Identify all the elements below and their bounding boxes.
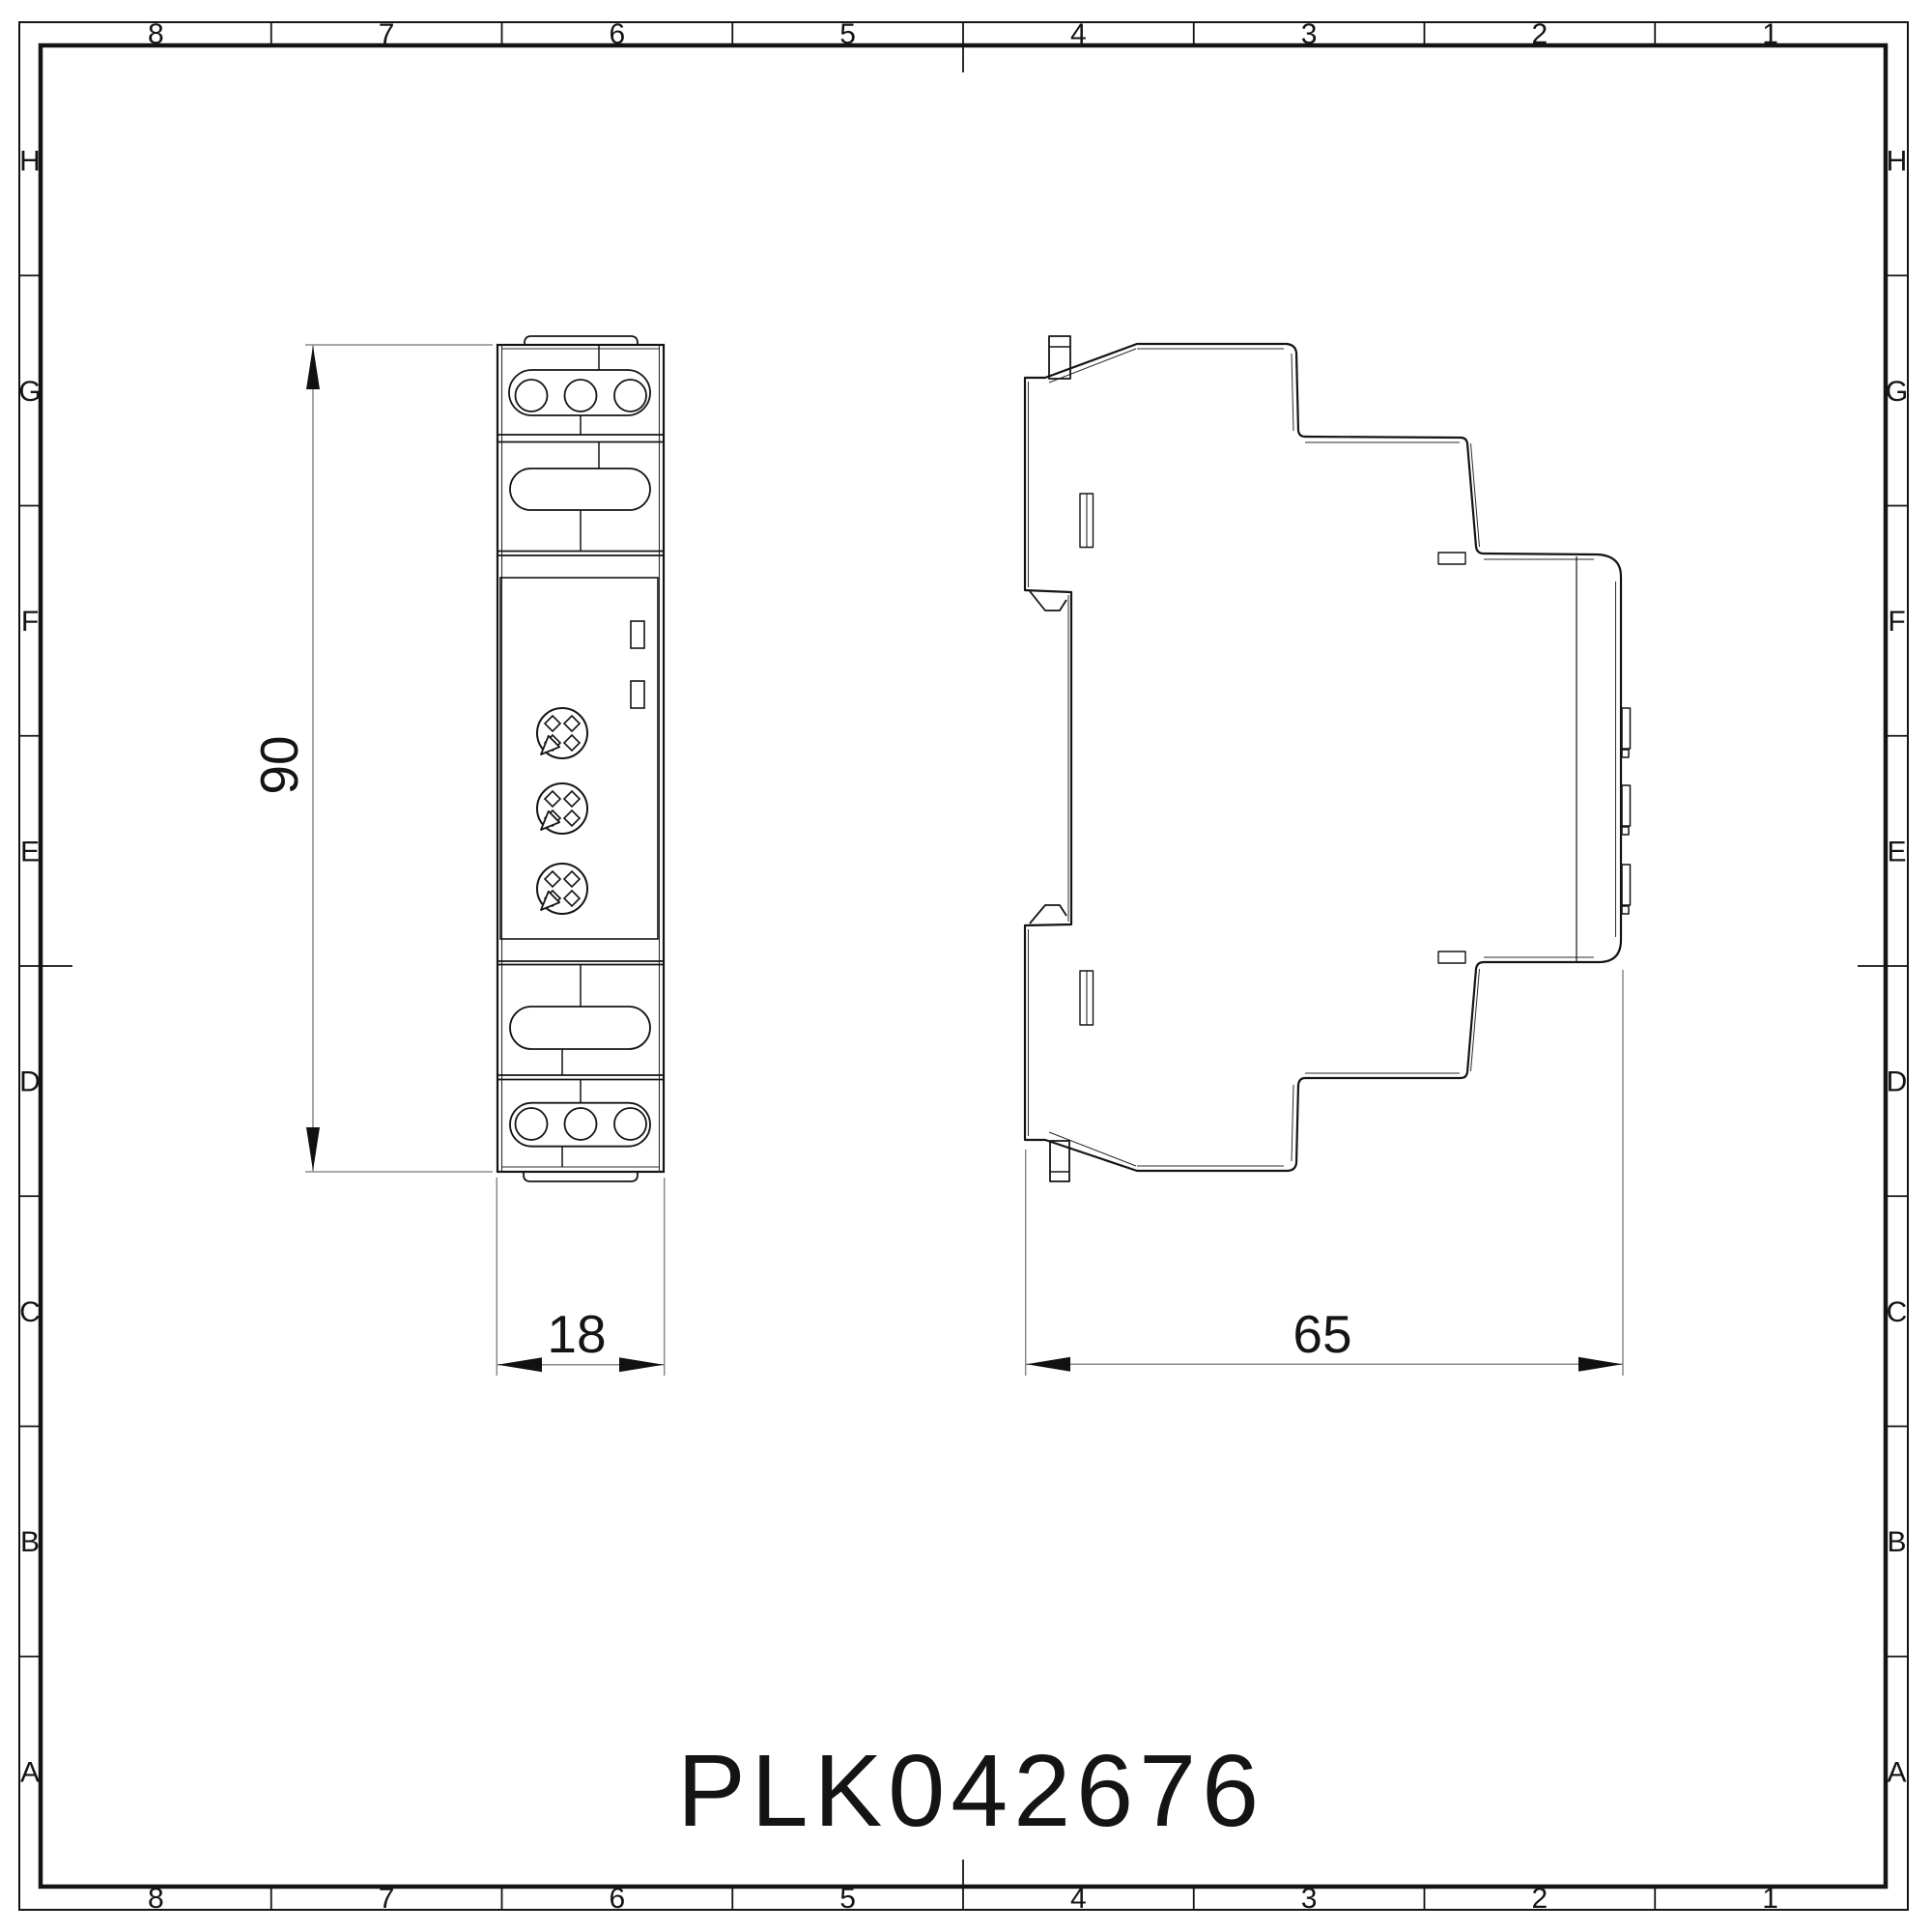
dimension-arrow: [497, 1357, 542, 1372]
grid-row-label: E: [20, 836, 40, 867]
grid-row-label: C: [1887, 1296, 1908, 1328]
grid-row-label: D: [1887, 1066, 1908, 1098]
drawing-canvas: 87654321 87654321 HGFEDCBA HGFEDCBA: [0, 0, 1932, 1932]
grid-row-label: E: [1887, 836, 1906, 867]
grid-column-label: 1: [1762, 1883, 1778, 1915]
part-number: PLK042676: [677, 1734, 1264, 1848]
grid-column-label: 4: [1070, 18, 1087, 50]
side-outline: [1025, 344, 1621, 1171]
grid-column-label: 7: [379, 18, 395, 50]
dimension-height: 90: [249, 345, 493, 1172]
grid-row-label: F: [1888, 606, 1905, 638]
dimension-arrow: [619, 1357, 664, 1372]
terminal-screw: [614, 380, 646, 412]
grid-column-label: 8: [148, 18, 164, 50]
dimension-arrow: [306, 346, 320, 389]
front-top-cap: [525, 336, 638, 345]
grid-row-label: C: [19, 1296, 41, 1328]
grid-column-label: 5: [839, 18, 856, 50]
terminal-screw: [565, 380, 597, 412]
front-bottom-cap: [524, 1172, 638, 1181]
drawing-frame: 87654321 87654321 HGFEDCBA HGFEDCBA: [18, 18, 1908, 1915]
dimension-arrow: [306, 1127, 320, 1171]
led-indicator: [631, 621, 644, 648]
dimension-lines: [305, 345, 493, 1172]
front-bottom-wire-slot: [510, 1007, 650, 1049]
grid-row-label: H: [19, 146, 41, 178]
drawing-sheet: 87654321 87654321 HGFEDCBA HGFEDCBA: [0, 0, 1932, 1932]
dimension-width-value: 18: [547, 1304, 606, 1364]
grid-column-label: 2: [1532, 1883, 1548, 1915]
grid-column-label: 6: [610, 1883, 626, 1915]
grid-row-labels-left: HGFEDCBA: [18, 146, 41, 1789]
grid-row-label: H: [1887, 146, 1908, 178]
dimension-arrow: [1027, 1357, 1071, 1372]
din-clip-tooth-top: [1030, 591, 1066, 611]
step-slot: [1438, 553, 1465, 564]
dimension-height-value: 90: [249, 735, 309, 794]
grid-column-label: 3: [1301, 1883, 1318, 1915]
grid-column-label: 1: [1762, 18, 1778, 50]
grid-row-label: A: [20, 1756, 40, 1788]
dimension-arrow: [1578, 1357, 1623, 1372]
grid-column-label: 8: [148, 1883, 164, 1915]
dimension-width: 18: [497, 1178, 664, 1376]
frame-grid-ticks: [19, 22, 1908, 1910]
potentiometer-knob: [537, 783, 587, 834]
led-indicator: [631, 681, 644, 708]
grid-row-labels-right: HGFEDCBA: [1886, 146, 1908, 1789]
terminal-screw: [565, 1108, 597, 1140]
grid-row-label: G: [1886, 376, 1908, 408]
potentiometer-knob: [537, 708, 587, 758]
grid-column-label: 3: [1301, 18, 1318, 50]
frame-outer-border: [19, 22, 1908, 1910]
front-top-wire-slot: [510, 469, 650, 510]
grid-row-label: F: [21, 606, 39, 638]
grid-column-label: 5: [839, 1883, 856, 1915]
grid-row-label: B: [20, 1526, 40, 1558]
side-view: [1025, 336, 1631, 1181]
front-top-terminal-slot: [509, 370, 650, 415]
grid-column-label: 7: [379, 1883, 395, 1915]
grid-row-label: D: [19, 1066, 41, 1098]
side-terminal-tabs: [1622, 708, 1631, 914]
grid-column-label: 4: [1070, 1883, 1087, 1915]
grid-column-label: 6: [610, 18, 626, 50]
terminal-screw: [516, 1108, 548, 1140]
side-inner-edges: [1029, 349, 1616, 1166]
potentiometer-knob: [537, 864, 587, 914]
dimension-depth-value: 65: [1293, 1304, 1351, 1364]
step-slot: [1438, 952, 1465, 963]
terminal-screw: [516, 380, 548, 412]
dimension-depth: 65: [1026, 970, 1623, 1376]
grid-row-label: B: [1887, 1526, 1906, 1558]
front-view: [497, 336, 664, 1181]
din-clip-tooth-bottom: [1030, 905, 1066, 923]
terminal-screw: [614, 1108, 646, 1140]
grid-column-label: 2: [1532, 18, 1548, 50]
frame-inner-border: [41, 45, 1886, 1887]
grid-row-label: G: [18, 376, 41, 408]
grid-row-label: A: [1887, 1756, 1906, 1788]
